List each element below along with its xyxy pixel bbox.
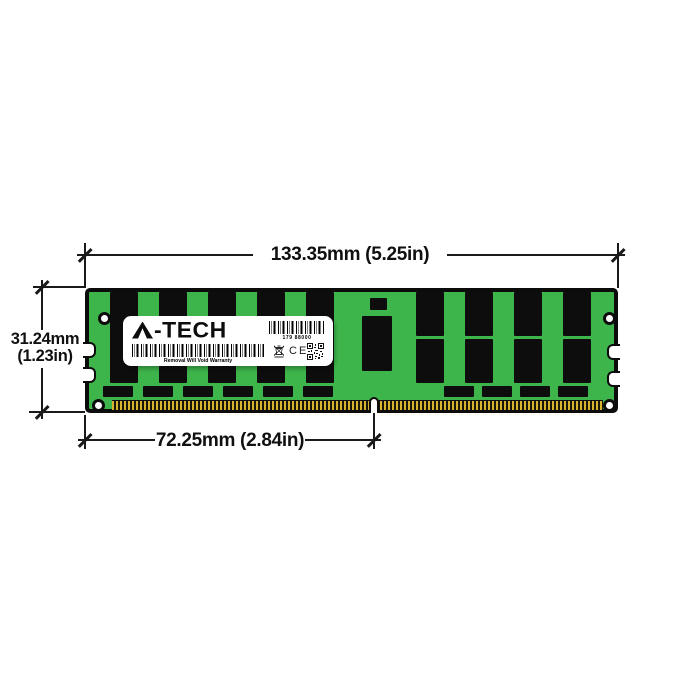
ce-mark: CE xyxy=(289,345,308,357)
memory-chip xyxy=(514,292,542,336)
product-diagram: 133.35mm (5.25in) 31.24mm (1.23in) 72.25… xyxy=(0,0,700,700)
brand-logo: -TECH xyxy=(132,321,227,339)
small-component-chip xyxy=(558,386,588,397)
key-notch xyxy=(369,397,379,413)
serial-number: 179 88000 xyxy=(269,335,325,341)
brand-logo-text: -TECH xyxy=(154,322,227,338)
edge-notch xyxy=(607,371,620,387)
pin-row xyxy=(112,400,603,410)
dimension-line xyxy=(77,254,253,256)
logo-a-triangle xyxy=(132,322,153,339)
small-component-chip xyxy=(143,386,173,397)
barcode-icon xyxy=(132,344,264,357)
memory-chip xyxy=(416,292,444,336)
edge-notch xyxy=(607,344,620,360)
register-chip xyxy=(362,316,392,371)
memory-chip xyxy=(370,298,387,310)
small-component-chip xyxy=(520,386,550,397)
memory-chip xyxy=(563,292,591,336)
mounting-hole xyxy=(92,399,105,412)
small-component-chip xyxy=(183,386,213,397)
edge-notch xyxy=(83,342,96,358)
mounting-hole xyxy=(603,399,616,412)
extension-line xyxy=(373,413,375,449)
extension-line xyxy=(33,286,85,288)
extension-line xyxy=(29,411,85,413)
memory-chip xyxy=(563,339,591,383)
memory-chip xyxy=(465,292,493,336)
memory-chip xyxy=(514,339,542,383)
edge-notch xyxy=(83,367,96,383)
product-label: -TECH 179 88000 Removal Will Void Warran… xyxy=(123,316,333,366)
small-component-chip xyxy=(444,386,474,397)
barcode-icon xyxy=(269,321,325,334)
extension-line xyxy=(84,243,86,288)
mounting-hole xyxy=(98,312,111,325)
qr-code-icon xyxy=(307,343,324,365)
extension-line xyxy=(84,415,86,449)
small-component-chip xyxy=(103,386,133,397)
extension-line xyxy=(617,243,619,288)
memory-chip xyxy=(416,339,444,383)
memory-chip xyxy=(465,339,493,383)
pin-span-dimension-label: 72.25mm (2.84in) xyxy=(130,430,330,452)
weee-bin-icon xyxy=(273,344,285,363)
mounting-hole xyxy=(603,312,616,325)
small-component-chip xyxy=(482,386,512,397)
dimension-line xyxy=(447,254,625,256)
warranty-text: Removal Will Void Warranty xyxy=(132,358,264,364)
width-dimension-label: 133.35mm (5.25in) xyxy=(250,244,450,266)
height-dimension-label: 31.24mm (1.23in) xyxy=(0,331,90,365)
memory-module: -TECH 179 88000 Removal Will Void Warran… xyxy=(85,288,618,413)
small-component-chip xyxy=(263,386,293,397)
small-component-chip xyxy=(303,386,333,397)
small-component-chip xyxy=(223,386,253,397)
